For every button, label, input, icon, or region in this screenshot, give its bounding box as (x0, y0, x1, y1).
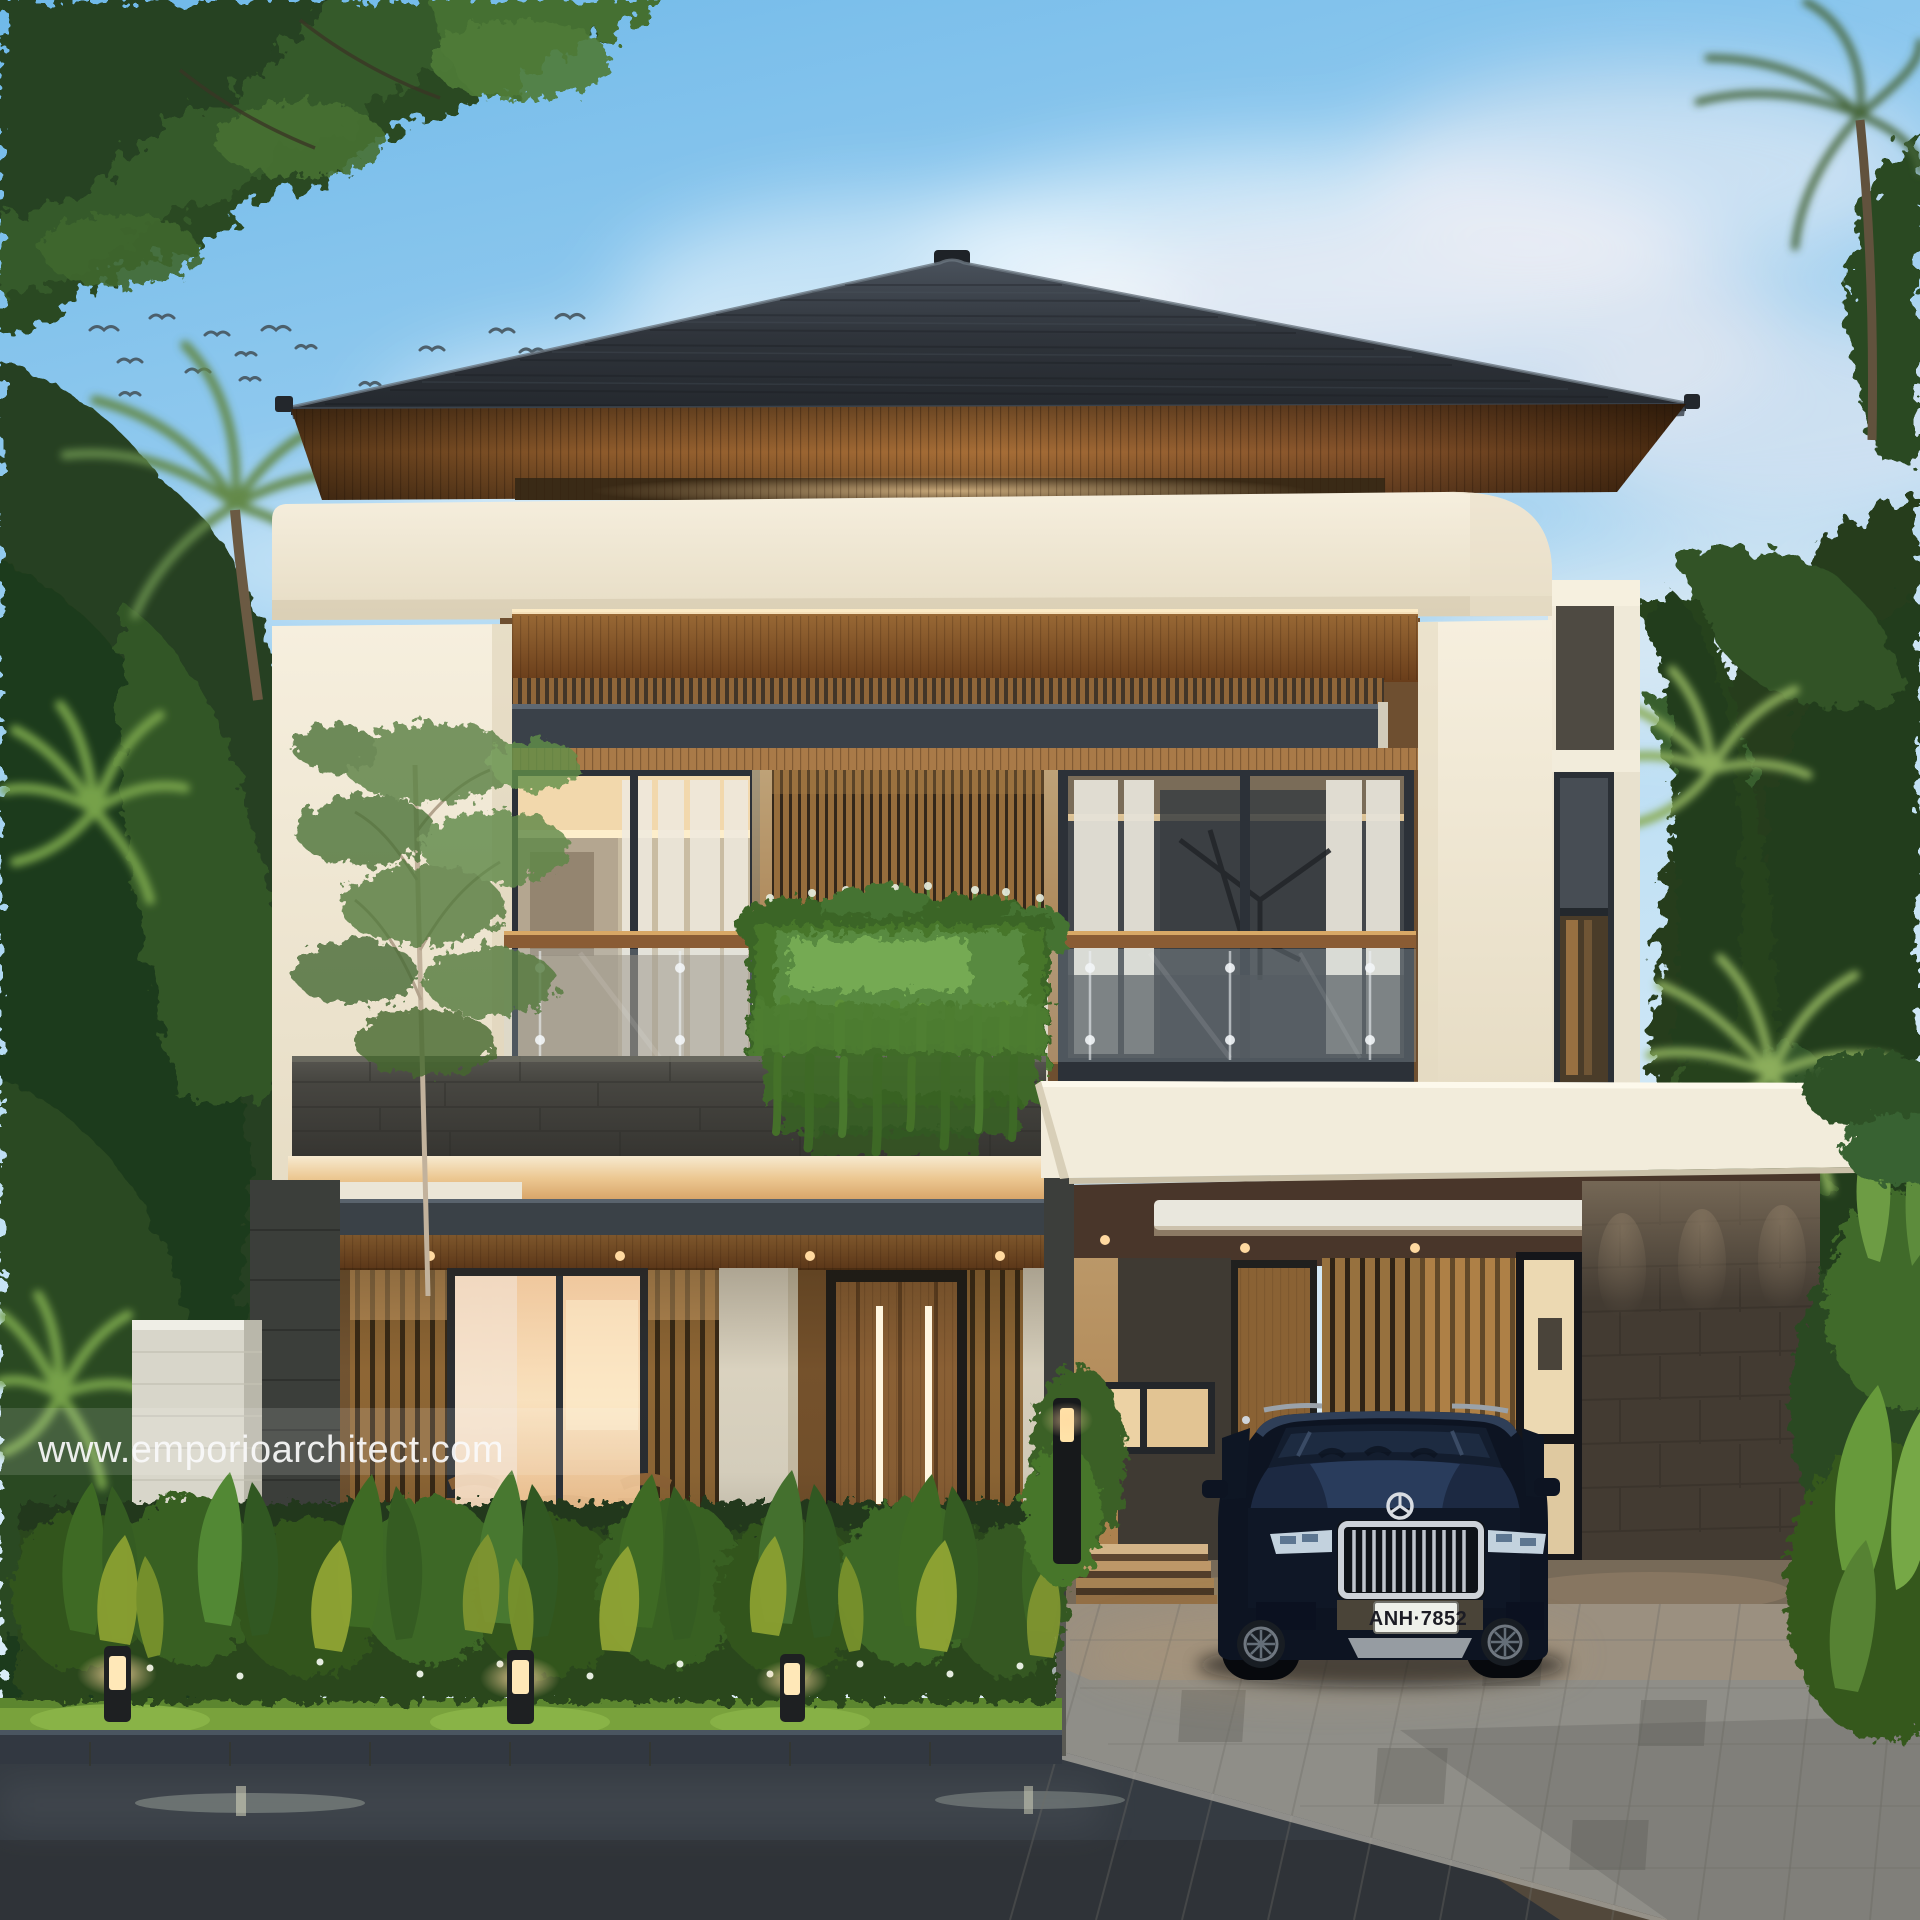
svg-text:ANH·7852: ANH·7852 (1369, 1608, 1467, 1630)
svg-text:www.emporioarchitect.com: www.emporioarchitect.com (37, 1429, 504, 1471)
